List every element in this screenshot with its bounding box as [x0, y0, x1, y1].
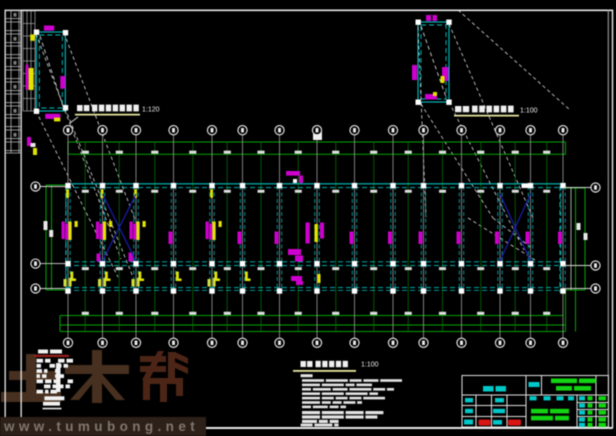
svg-text:1:120: 1:120: [142, 107, 160, 114]
svg-text:1:100: 1:100: [361, 362, 379, 369]
svg-text:www.tumubong.net: www.tumubong.net: [3, 419, 199, 434]
svg-text:1:100: 1:100: [520, 108, 538, 115]
